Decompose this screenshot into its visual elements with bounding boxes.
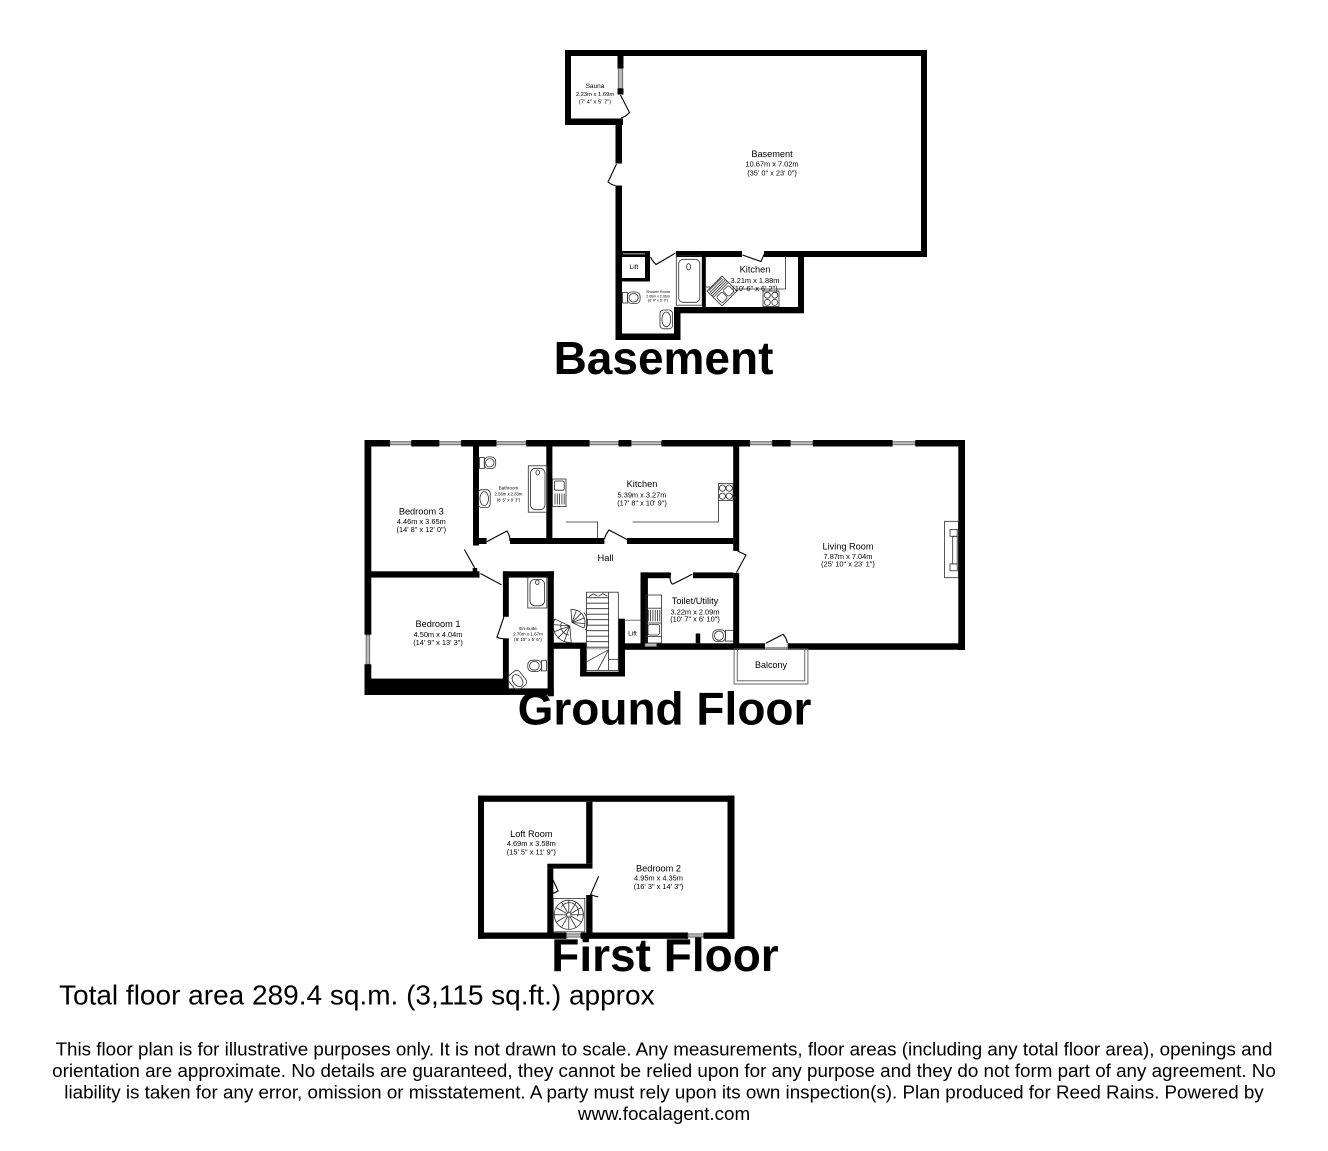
svg-text:This floor plan is for illustr: This floor plan is for illustrative purp… bbox=[56, 1039, 1273, 1060]
svg-text:(7' 4" x 5' 7"): (7' 4" x 5' 7") bbox=[579, 100, 611, 106]
svg-text:Kitchen: Kitchen bbox=[627, 479, 658, 489]
svg-text:Bathroom: Bathroom bbox=[499, 486, 519, 491]
svg-text:Shower Room: Shower Room bbox=[646, 290, 670, 294]
svg-text:(14' 9" x 13' 3"): (14' 9" x 13' 3") bbox=[413, 638, 463, 647]
svg-text:Hall: Hall bbox=[597, 553, 613, 563]
svg-text:Ground Floor: Ground Floor bbox=[518, 683, 812, 735]
svg-text:(35' 0" x 23' 0"): (35' 0" x 23' 0") bbox=[747, 169, 797, 178]
svg-text:Basement: Basement bbox=[751, 149, 793, 159]
svg-text:(10' 7" x 6' 10"): (10' 7" x 6' 10") bbox=[670, 614, 720, 623]
svg-text:2.23m x 1.69m: 2.23m x 1.69m bbox=[576, 92, 615, 98]
svg-text:2.70m x 1.67m: 2.70m x 1.67m bbox=[513, 632, 543, 637]
svg-text:Lift: Lift bbox=[630, 264, 639, 271]
svg-text:Bedroom 2: Bedroom 2 bbox=[636, 864, 681, 874]
svg-text:orientation are approximate. N: orientation are approximate. No details … bbox=[52, 1060, 1276, 1081]
svg-text:Loft Room: Loft Room bbox=[510, 829, 553, 839]
svg-text:(14' 8" x 12' 0"): (14' 8" x 12' 0") bbox=[397, 525, 447, 534]
svg-text:(8' 5" x 9' 3"): (8' 5" x 9' 3") bbox=[497, 498, 521, 503]
svg-text:Balcony: Balcony bbox=[755, 660, 788, 670]
svg-text:Lift: Lift bbox=[628, 631, 637, 638]
svg-text:First Floor: First Floor bbox=[551, 929, 779, 981]
svg-text:(16' 3" x 14' 3"): (16' 3" x 14' 3") bbox=[634, 882, 684, 891]
svg-text:(25' 10" x 23' 1"): (25' 10" x 23' 1") bbox=[821, 559, 875, 568]
svg-text:Living Room: Living Room bbox=[822, 542, 873, 552]
svg-text:(10' 6" x 6' 2"): (10' 6" x 6' 2") bbox=[732, 284, 777, 293]
svg-text:(6' 9" x 6' 9"): (6' 9" x 6' 9") bbox=[648, 299, 668, 303]
svg-text:(15' 5" x 11' 9"): (15' 5" x 11' 9") bbox=[507, 848, 556, 857]
svg-text:Kitchen: Kitchen bbox=[740, 265, 771, 275]
svg-text:liability is taken for any err: liability is taken for any error, omissi… bbox=[64, 1082, 1264, 1103]
svg-text:Total floor area 289.4 sq.m. (: Total floor area 289.4 sq.m. (3,115 sq.f… bbox=[59, 980, 655, 1011]
svg-text:(17' 8" x 10' 9"): (17' 8" x 10' 9") bbox=[617, 499, 667, 508]
svg-text:www.focalagent.com: www.focalagent.com bbox=[577, 1103, 750, 1124]
svg-text:Bedroom 3: Bedroom 3 bbox=[399, 507, 444, 517]
svg-text:(8' 10" x 5' 6"): (8' 10" x 5' 6") bbox=[514, 637, 542, 642]
svg-text:Sauna: Sauna bbox=[586, 83, 605, 90]
svg-text:Basement: Basement bbox=[554, 332, 774, 384]
svg-text:10.67m x 7.02m: 10.67m x 7.02m bbox=[746, 160, 799, 169]
svg-text:2.56m x 2.83m: 2.56m x 2.83m bbox=[495, 492, 523, 497]
svg-text:Bedroom 1: Bedroom 1 bbox=[416, 619, 461, 629]
svg-text:Toilet/Utility: Toilet/Utility bbox=[672, 596, 719, 606]
